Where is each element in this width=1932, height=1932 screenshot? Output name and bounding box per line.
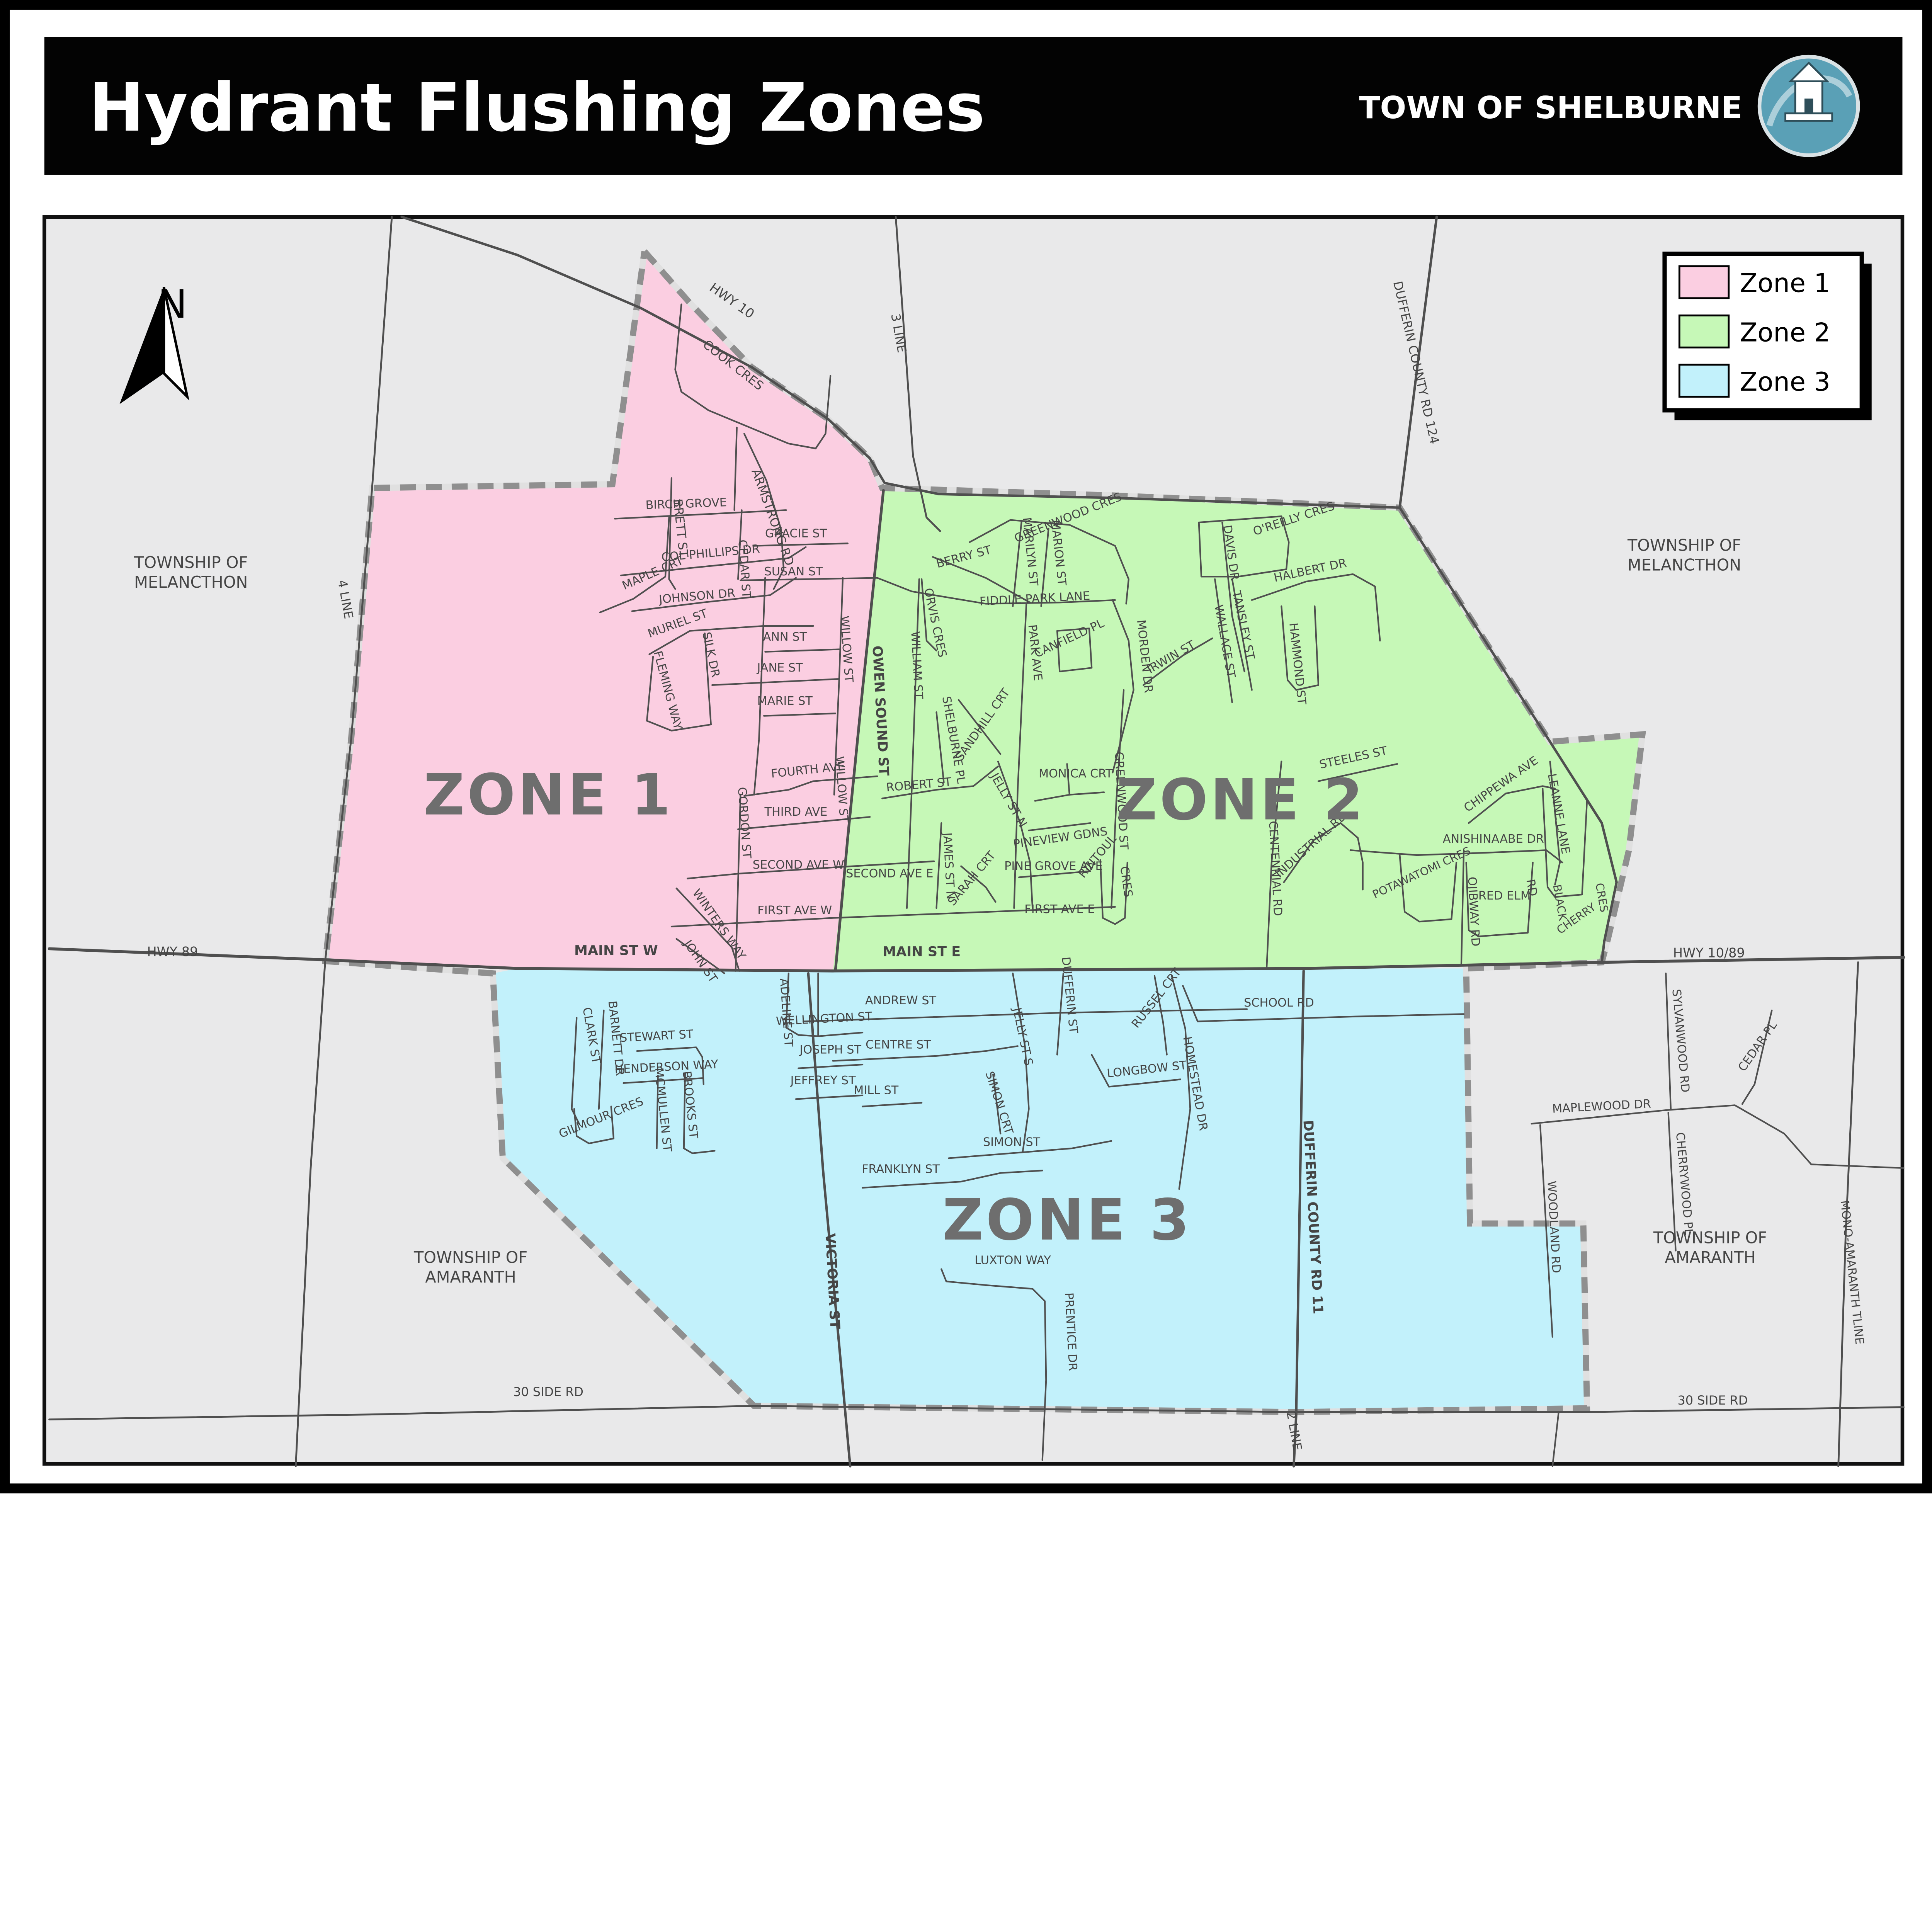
street-label-simon-st: SIMON ST — [983, 1136, 1041, 1149]
street-label-second-ave-w: SECOND AVE W — [753, 858, 844, 872]
legend-label-zone1: Zone 1 — [1740, 268, 1830, 298]
street-label-rd: RD — [1523, 878, 1539, 898]
street-label-jeffrey-st: JEFFREY ST — [790, 1074, 856, 1087]
street-label-first-ave-w: FIRST AVE W — [757, 904, 832, 917]
street-label-centre-st: CENTRE ST — [866, 1038, 931, 1052]
street-label-melancthon: MELANCTHON — [1628, 556, 1741, 574]
legend-swatch-zone1 — [1679, 266, 1729, 298]
street-label-hwy-89: HWY 89 — [147, 944, 198, 959]
street-label-susan-st: SUSAN ST — [764, 565, 823, 578]
town-logo-door — [1804, 99, 1813, 113]
street-label-anishinaabe-dr: ANISHINAABE DR — [1443, 832, 1544, 846]
org-name: TOWN OF SHELBURNE — [1359, 90, 1742, 126]
street-label-main-st-e: MAIN ST E — [883, 944, 961, 959]
street-label-melancthon: MELANCTHON — [134, 573, 248, 592]
legend-label-zone2: Zone 2 — [1740, 317, 1830, 347]
street-label-township-of: TOWNSHIP OF — [1627, 536, 1741, 554]
legend-swatch-zone2 — [1679, 315, 1729, 347]
street-label-30-side-rd: 30 SIDE RD — [513, 1384, 583, 1399]
street-label-monica-crt: MONICA CRT — [1039, 767, 1113, 781]
zone-1-label: ZONE 1 — [423, 762, 673, 828]
street-label-school-rd: SCHOOL RD — [1244, 996, 1314, 1010]
street-label-red-elm: RED ELM — [1478, 889, 1531, 903]
street-label-andrew-st: ANDREW ST — [865, 994, 937, 1007]
street-label-birch-grove: BIRCH GROVE — [645, 496, 727, 512]
title-bar: Hydrant Flushing Zones TOWN OF SHELBURNE — [44, 37, 1903, 175]
street-label-second-ave-e: SECOND AVE E — [846, 867, 933, 880]
street-label-hwy-10-89: HWY 10/89 — [1673, 946, 1745, 961]
legend-label-zone3: Zone 3 — [1740, 367, 1830, 397]
street-label-first-ave-e: FIRST AVE E — [1024, 903, 1095, 916]
street-label-third-ave: THIRD AVE — [764, 805, 828, 819]
street-label-jane-st: JANE ST — [756, 661, 803, 675]
hydrant-flushing-zones-map: HWY 103 LINECOOK CRESBRETT STARMSTRONG R… — [0, 0, 1932, 1493]
town-logo — [1760, 57, 1858, 155]
page-title: Hydrant Flushing Zones — [89, 69, 985, 146]
legend-swatch-zone3 — [1679, 365, 1729, 397]
street-label-franklyn-st: FRANKLYN ST — [862, 1163, 940, 1176]
zone-2-label: ZONE 2 — [1116, 767, 1365, 833]
street-label-joseph-st: JOSEPH ST — [799, 1043, 861, 1056]
legend: Zone 1 Zone 2 Zone 3 — [1665, 254, 1872, 420]
street-label-township-of: TOWNSHIP OF — [1653, 1228, 1767, 1247]
street-label-30-side-rd: 30 SIDE RD — [1677, 1393, 1748, 1408]
street-label-main-st-w: MAIN ST W — [574, 942, 658, 958]
street-label-township-of: TOWNSHIP OF — [413, 1248, 527, 1267]
zone-3-label: ZONE 3 — [942, 1187, 1192, 1253]
street-label-luxton-way: LUXTON WAY — [975, 1254, 1051, 1267]
street-label-township-of: TOWNSHIP OF — [134, 553, 248, 572]
street-label-gracie-st: GRACIE ST — [765, 527, 827, 540]
street-label-marie-st: MARIE ST — [757, 694, 813, 708]
street-label-amaranth: AMARANTH — [1665, 1248, 1755, 1267]
street-label-pine-grove-ave: PINE GROVE AVE — [1004, 859, 1103, 873]
street-label-ann-st: ANN ST — [763, 630, 807, 644]
town-logo-base — [1786, 113, 1832, 121]
street-label-amaranth: AMARANTH — [425, 1268, 516, 1287]
street-label-mill-st: MILL ST — [854, 1084, 899, 1097]
